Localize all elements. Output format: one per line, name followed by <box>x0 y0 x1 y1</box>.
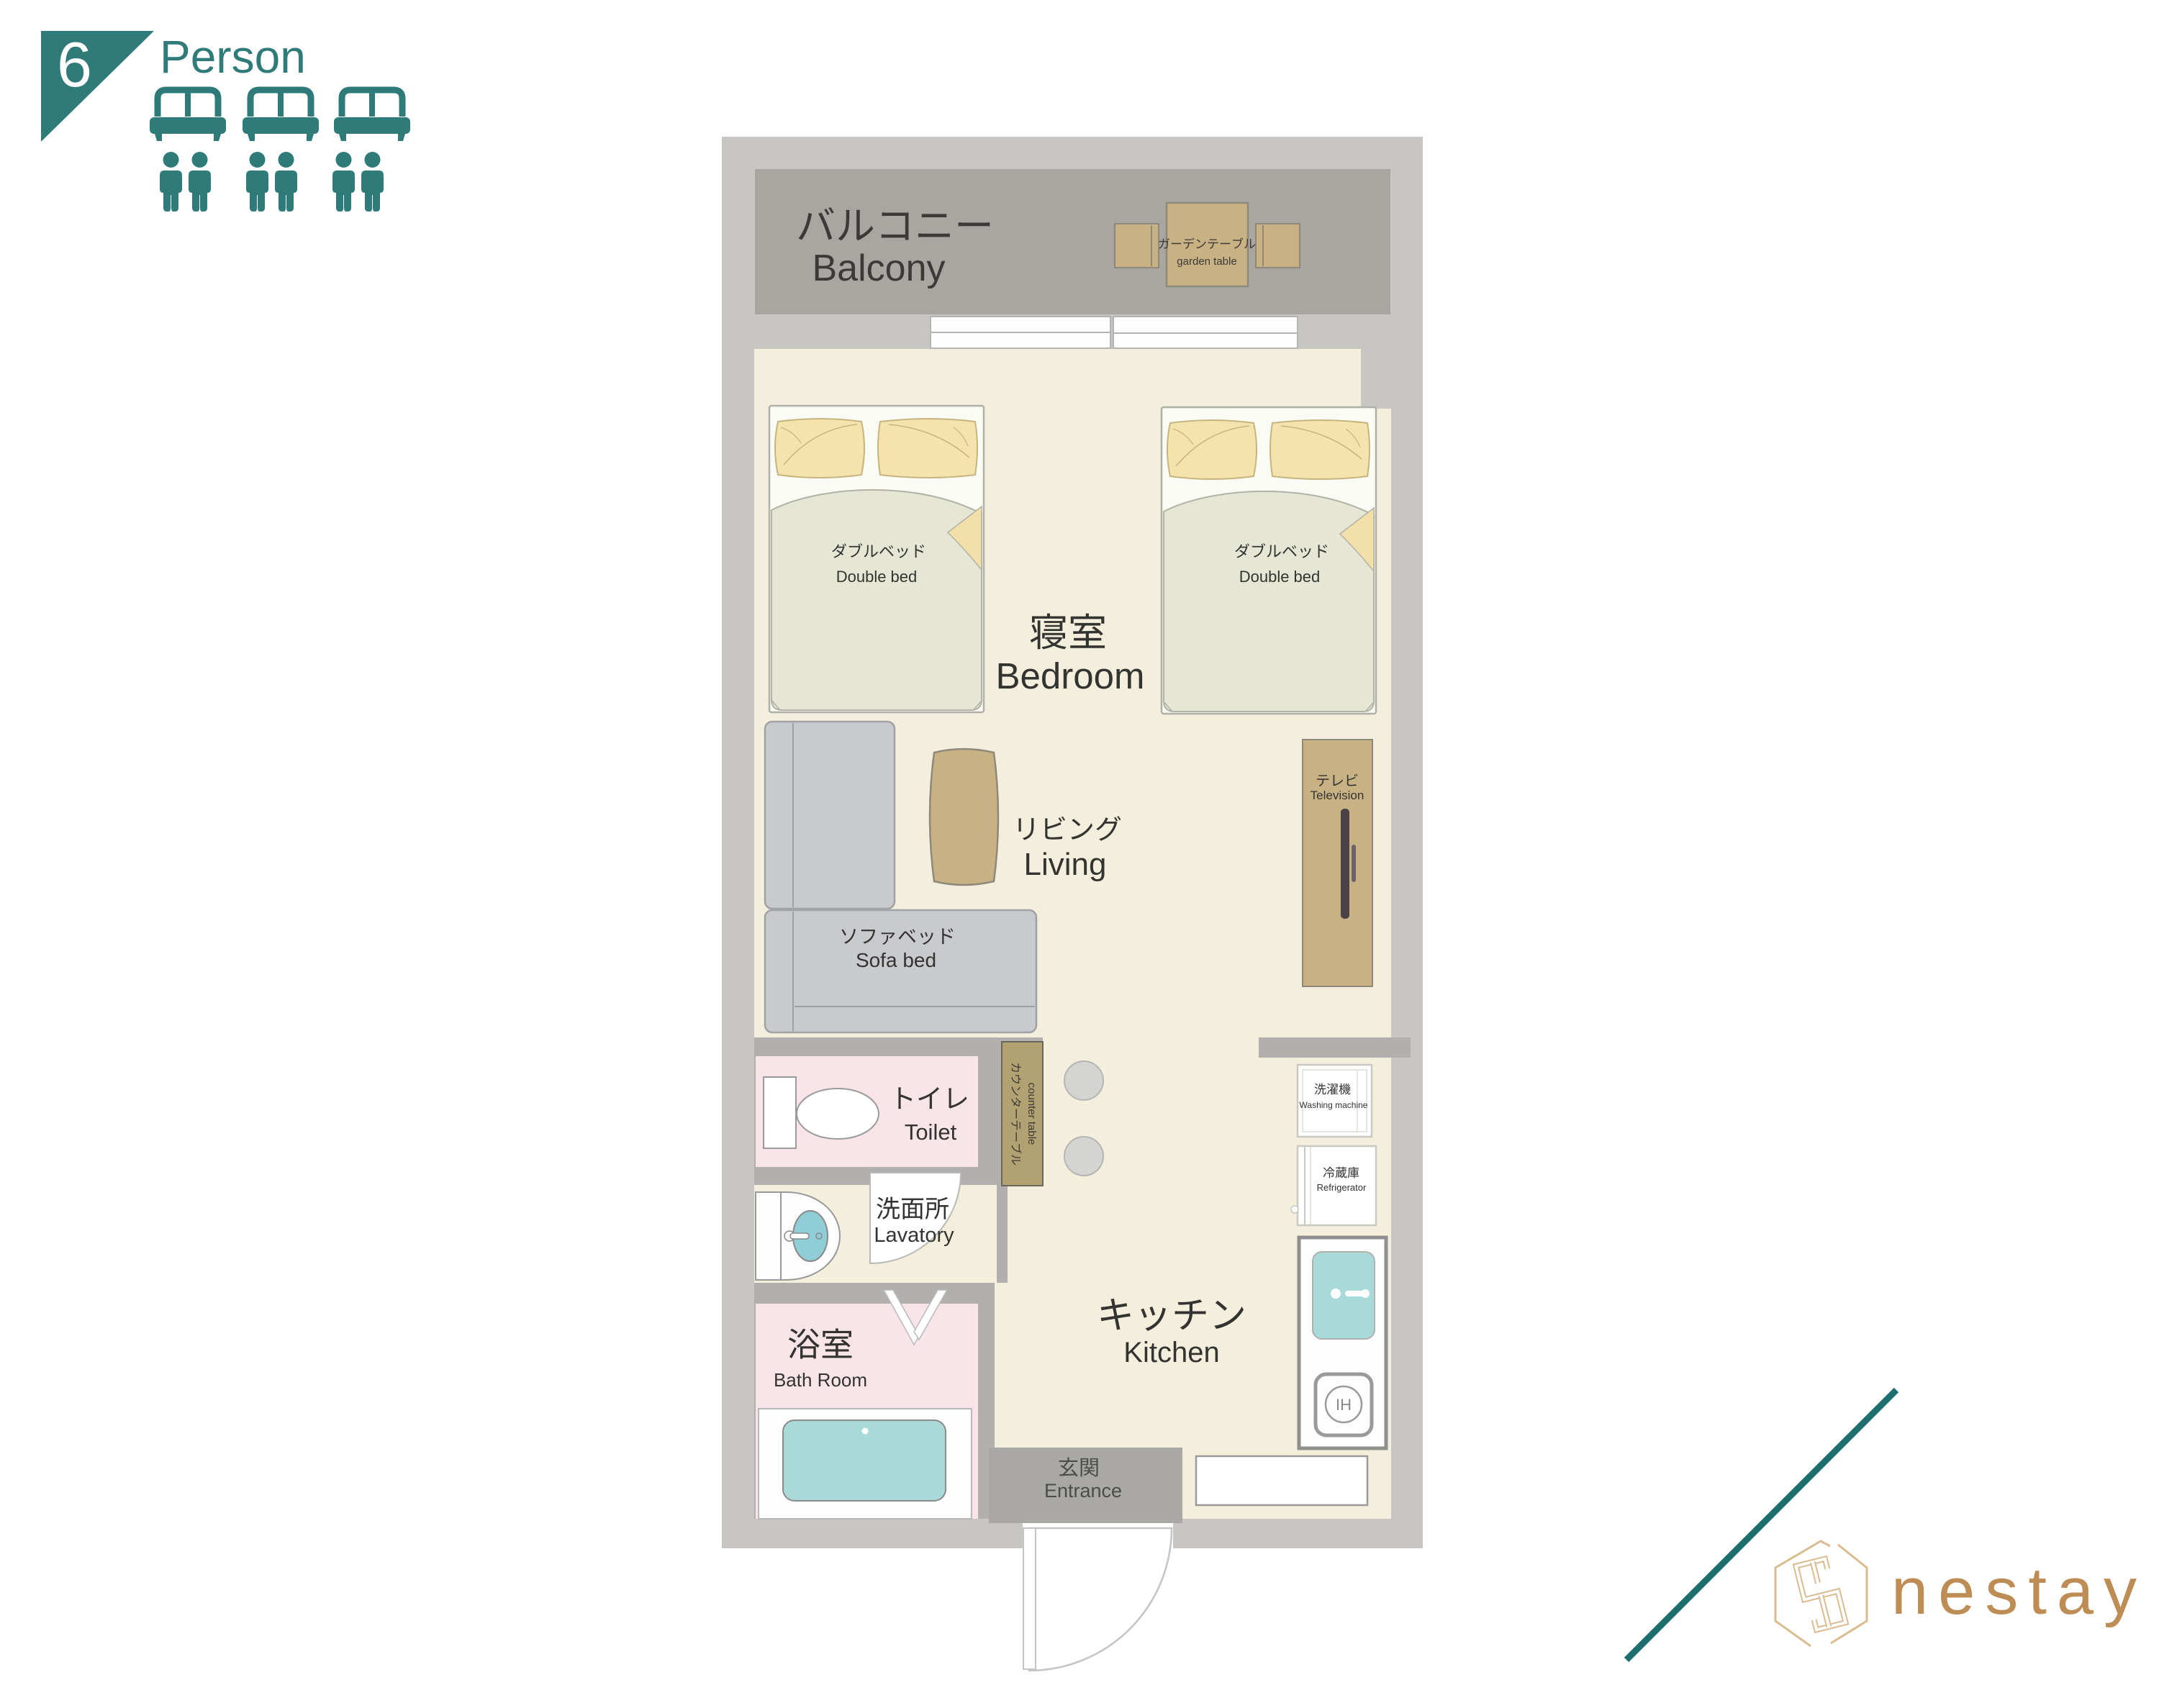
svg-text:Toilet: Toilet <box>905 1119 957 1145</box>
svg-text:6: 6 <box>57 29 92 100</box>
svg-text:Balcony: Balcony <box>813 247 946 289</box>
svg-text:Lavatory: Lavatory <box>874 1224 954 1247</box>
svg-text:counter table: counter table <box>1026 1083 1038 1145</box>
svg-text:Living: Living <box>1024 847 1107 882</box>
svg-text:Kitchen: Kitchen <box>1123 1337 1219 1368</box>
svg-text:Entrance: Entrance <box>1044 1480 1122 1502</box>
svg-text:Double bed: Double bed <box>1239 568 1321 586</box>
svg-text:Bath Room: Bath Room <box>774 1369 867 1391</box>
svg-text:Refrigerator: Refrigerator <box>1317 1182 1367 1193</box>
svg-text:Television: Television <box>1311 789 1364 802</box>
svg-text:nestay: nestay <box>1891 1555 2147 1628</box>
svg-text:Double bed: Double bed <box>836 568 918 586</box>
svg-text:IH: IH <box>1336 1396 1352 1414</box>
svg-text:Washing machine: Washing machine <box>1300 1100 1368 1110</box>
svg-text:Person: Person <box>160 31 306 83</box>
svg-text:Sofa bed: Sofa bed <box>856 949 936 971</box>
svg-text:garden table: garden table <box>1177 255 1236 268</box>
svg-text:Bedroom: Bedroom <box>996 655 1145 696</box>
